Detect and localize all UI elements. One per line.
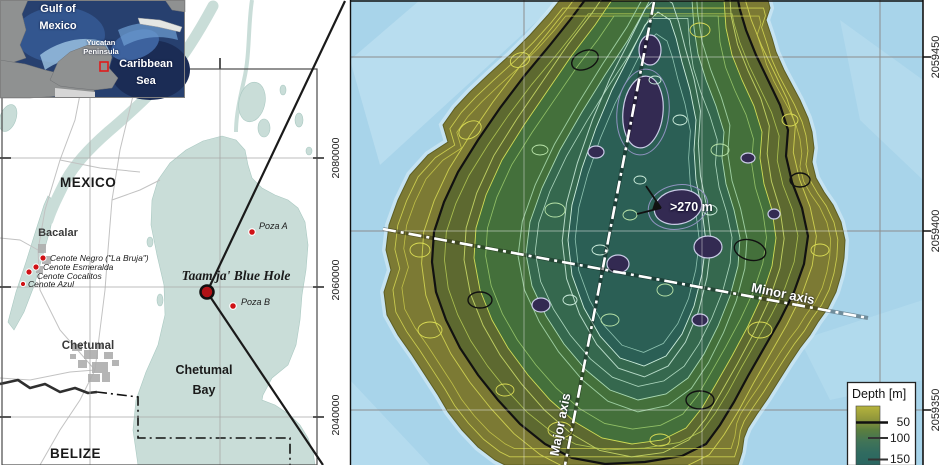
chetumal-bay-label-line1: Chetumal [176,363,233,377]
inset-yucatan-label-line2: Peninsula [83,47,118,56]
belize-label: BELIZE [50,446,101,461]
left-axis-tick-2040000: 2040000 [330,387,342,443]
cenote-azul-label: Cenote Azul [28,279,74,289]
right-axis-tick-2059400: 2059400 [930,202,942,260]
legend-title: Depth [m] [852,387,906,401]
mexico-label: MEXICO [60,175,116,190]
poza-b-label: Poza B [241,297,270,307]
poza-a-label: Poza A [259,221,288,231]
legend-tick-50: 50 [880,415,910,429]
poza-a-dot [249,229,256,236]
left-axis-tick-2060000: 2060000 [330,252,342,308]
depth-color-ramp [856,406,880,465]
depth-annotation: >270 m [670,200,713,214]
inset-caribbean-label-line2: Sea [136,75,156,87]
poza-b-dot [230,303,237,310]
right-axis-tick-2059350: 2059350 [930,381,942,439]
left-axis-tick-2080000: 2080000 [330,130,342,186]
inset-gulf-label-line2: Mexico [39,20,76,32]
chetumal-label: Chetumal [62,340,114,352]
inset-gulf-label-line1: Gulf of [40,3,75,15]
chetumal-bay-label-line2: Bay [193,383,216,397]
blue-hole-dot [201,286,214,299]
right-map-panel [350,0,923,465]
legend-tick-100: 100 [880,431,910,445]
inset-yucatan-label-line1: Yucatan [87,38,116,47]
blue-hole-label: Taam ja' Blue Hole [182,268,291,284]
bacalar-label: Bacalar [38,227,78,239]
legend-tick-150: 150 [880,452,910,465]
inset-caribbean-label-line1: Caribbean [119,58,173,70]
taamja-blue-hole-figure: Gulf of Mexico Yucatan Peninsula Caribbe… [0,0,948,465]
right-axis-tick-2059450: 2059450 [930,28,942,86]
